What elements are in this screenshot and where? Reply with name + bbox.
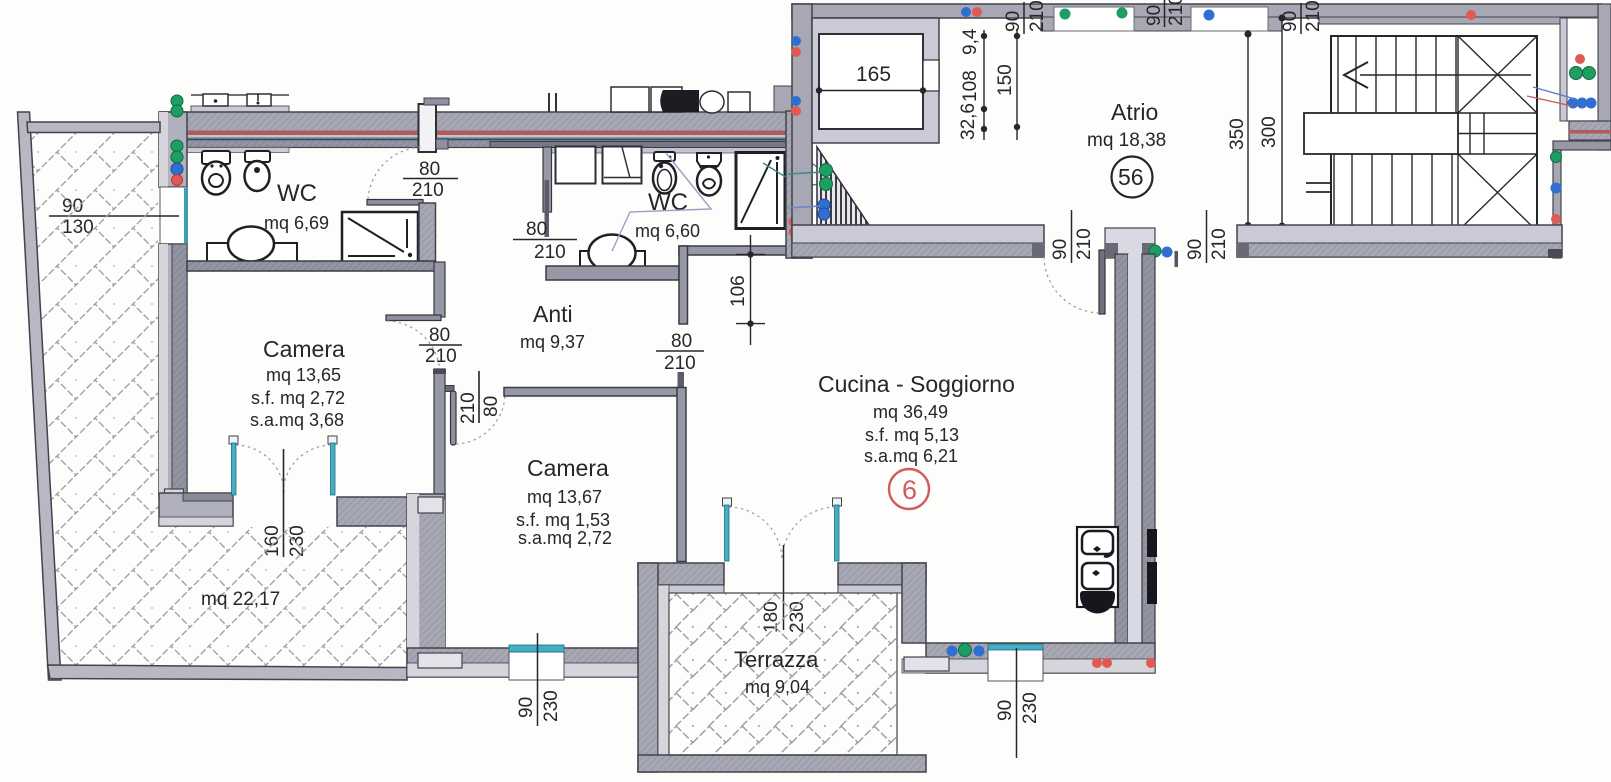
svg-text:mq 13,65: mq 13,65	[266, 365, 341, 385]
svg-text:Terrazza: Terrazza	[734, 647, 819, 672]
svg-text:210: 210	[458, 392, 479, 424]
svg-text:6: 6	[902, 475, 917, 505]
svg-text:90: 90	[1050, 239, 1071, 260]
svg-text:90: 90	[516, 697, 537, 718]
svg-text:90: 90	[1144, 5, 1165, 26]
svg-text:mq 6,60: mq 6,60	[635, 221, 700, 241]
svg-text:90: 90	[1280, 11, 1301, 32]
svg-text:106: 106	[728, 275, 749, 307]
svg-text:210: 210	[412, 180, 444, 201]
svg-text:90: 90	[1003, 11, 1024, 32]
svg-text:210: 210	[1209, 228, 1230, 260]
svg-text:s.a.mq 6,21: s.a.mq 6,21	[864, 446, 958, 466]
svg-text:Camera: Camera	[263, 336, 345, 362]
svg-text:80: 80	[526, 219, 547, 240]
svg-text:210: 210	[534, 242, 566, 263]
svg-text:210: 210	[664, 353, 696, 374]
svg-text:210: 210	[425, 346, 457, 367]
svg-text:80: 80	[419, 159, 440, 180]
svg-text:210: 210	[1027, 0, 1048, 32]
svg-text:mq 9,04: mq 9,04	[745, 677, 810, 697]
svg-text:s.f. mq 5,13: s.f. mq 5,13	[865, 425, 959, 445]
svg-text:mq 9,37: mq 9,37	[520, 332, 585, 352]
svg-text:90: 90	[995, 700, 1016, 721]
svg-text:s.a.mq 3,68: s.a.mq 3,68	[250, 410, 344, 430]
svg-text:230: 230	[1020, 692, 1041, 724]
svg-text:mq 36,49: mq 36,49	[873, 402, 948, 422]
svg-text:230: 230	[541, 690, 562, 722]
svg-text:300: 300	[1259, 116, 1280, 148]
svg-text:mq 18,38: mq 18,38	[1087, 130, 1166, 151]
svg-text:80: 80	[481, 396, 502, 417]
svg-text:108: 108	[960, 70, 981, 102]
svg-text:80: 80	[429, 325, 450, 346]
svg-text:WC: WC	[277, 180, 317, 207]
svg-text:56: 56	[1118, 164, 1144, 190]
svg-text:210: 210	[1303, 0, 1324, 32]
svg-text:mq 6,69: mq 6,69	[264, 213, 329, 233]
svg-text:s.f. mq 2,72: s.f. mq 2,72	[251, 388, 345, 408]
svg-text:Anti: Anti	[533, 301, 573, 327]
svg-text:Cucina - Soggiorno: Cucina - Soggiorno	[818, 371, 1015, 397]
svg-text:mq 13,67: mq 13,67	[527, 487, 602, 507]
svg-text:80: 80	[671, 331, 692, 352]
svg-text:150: 150	[995, 64, 1016, 96]
svg-text:s.f. mq 1,53: s.f. mq 1,53	[516, 510, 610, 530]
svg-text:mq 22,17: mq 22,17	[201, 589, 280, 610]
svg-text:Atrio: Atrio	[1111, 99, 1158, 125]
svg-text:32,6: 32,6	[958, 103, 979, 140]
svg-text:210: 210	[1074, 228, 1095, 260]
svg-text:350: 350	[1227, 118, 1248, 150]
svg-text:90: 90	[1185, 239, 1206, 260]
svg-text:210: 210	[1166, 0, 1187, 26]
svg-text:WC: WC	[648, 189, 688, 216]
svg-text:Camera: Camera	[527, 455, 609, 481]
svg-text:165: 165	[856, 63, 891, 86]
svg-text:s.a.mq 2,72: s.a.mq 2,72	[518, 528, 612, 548]
svg-text:9,4: 9,4	[960, 28, 981, 55]
